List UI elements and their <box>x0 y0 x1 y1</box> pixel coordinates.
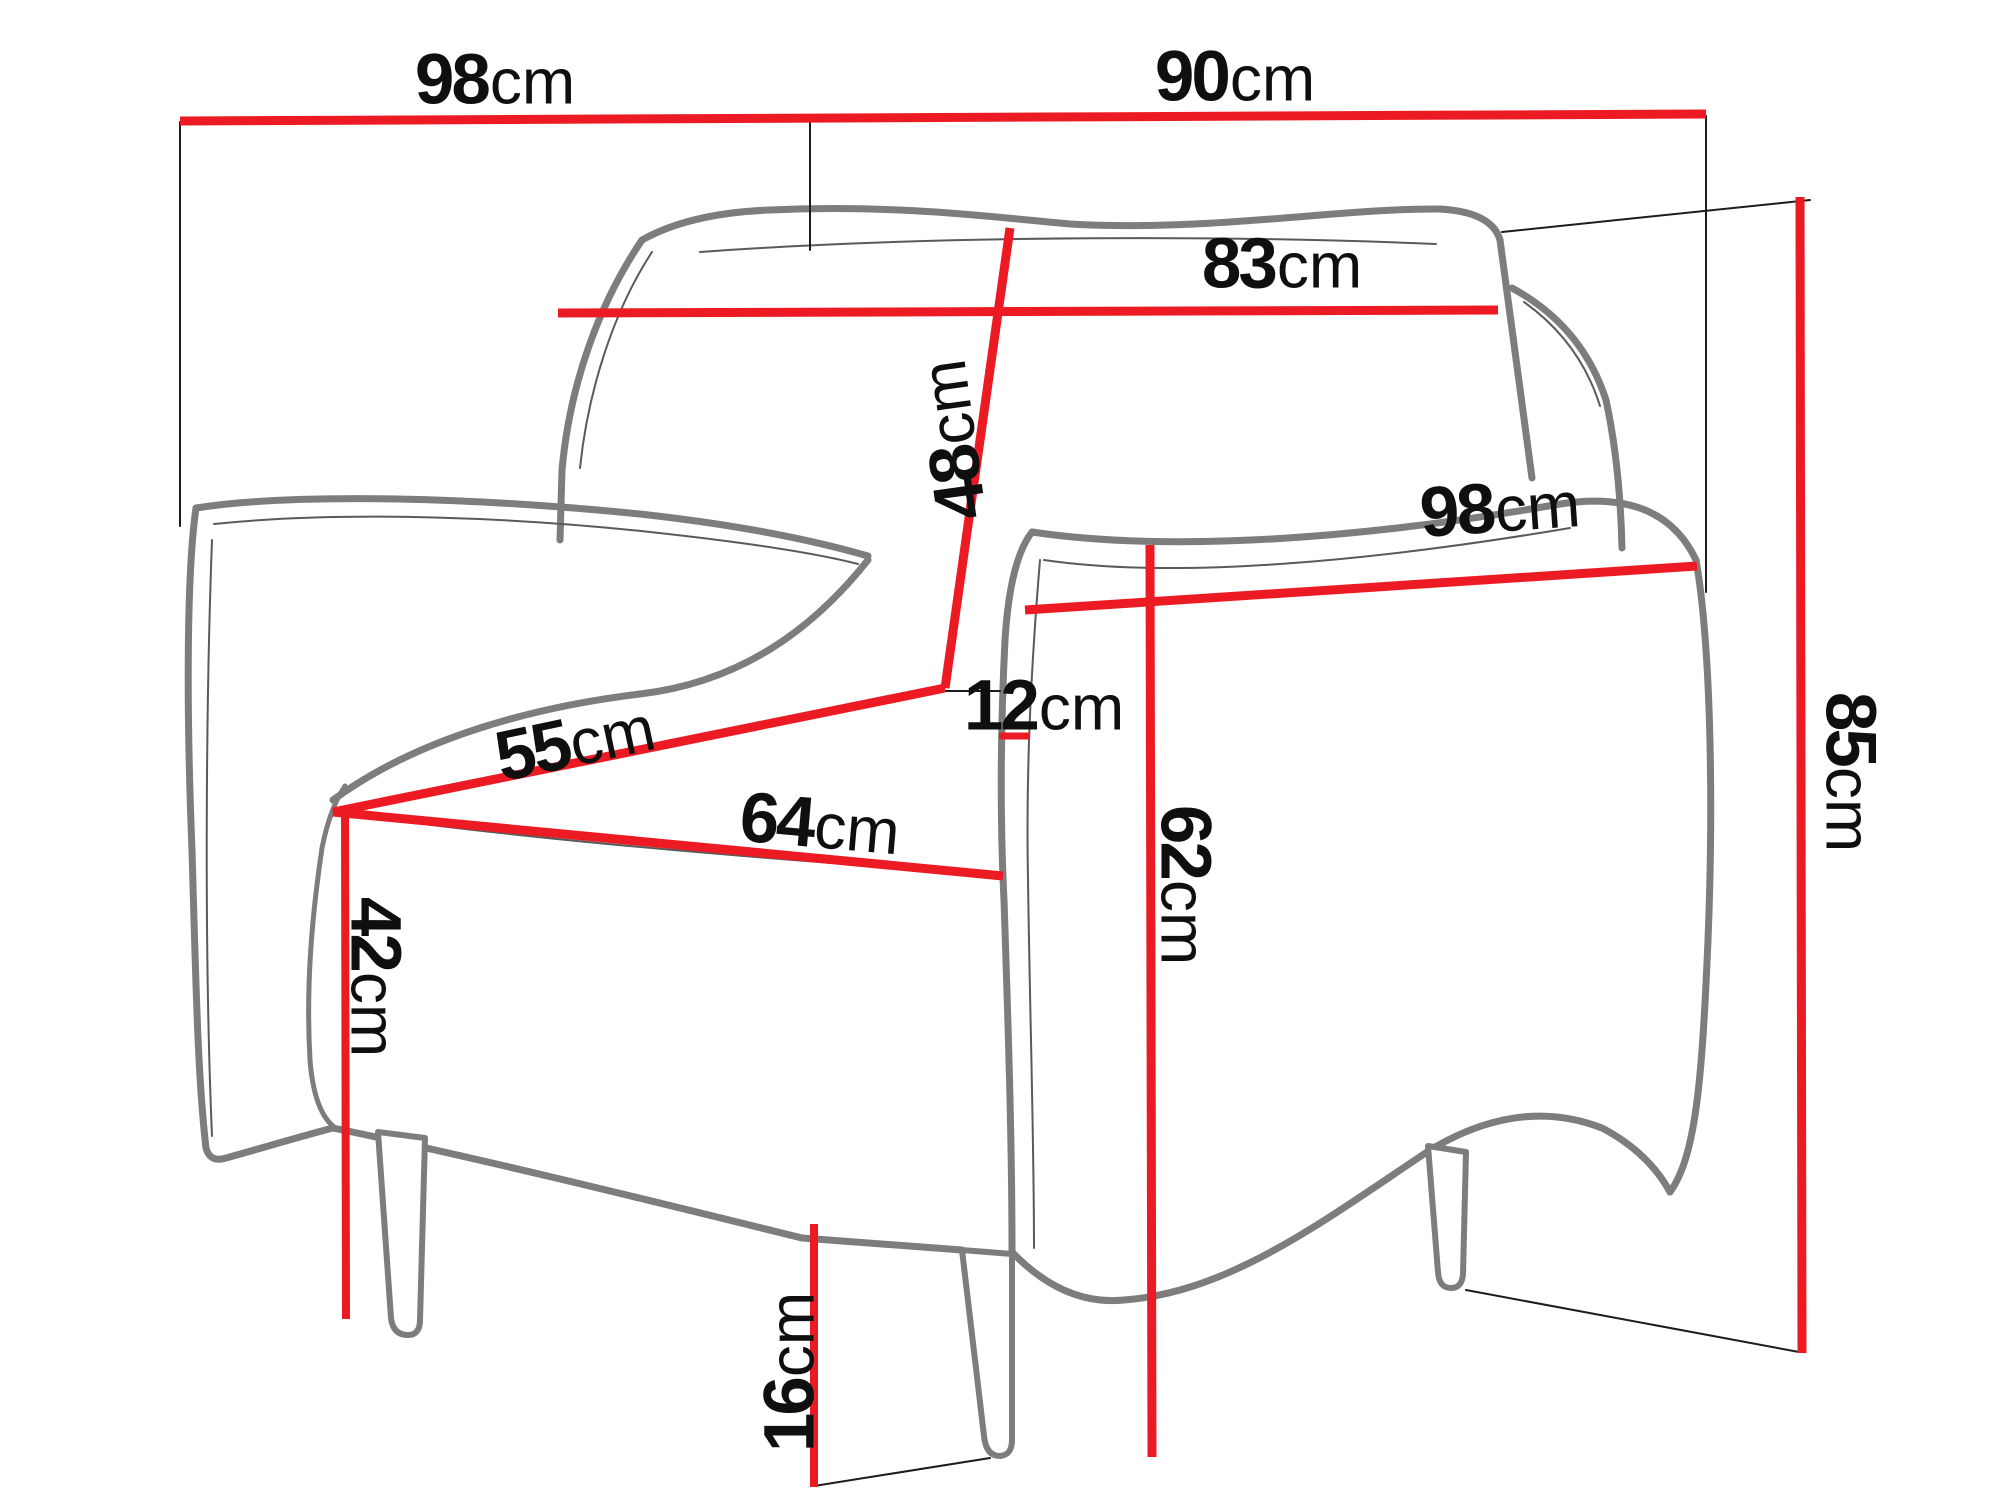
dimension-value: 98 <box>415 41 490 120</box>
dim-line-top-width <box>180 114 1706 121</box>
ext-top-right-horizontal <box>1502 200 1810 232</box>
dimension-unit: cm <box>756 1292 828 1377</box>
dimension-value: 42 <box>336 897 415 972</box>
dimension-label-seat-height: 42cm <box>340 897 411 1057</box>
dimension-label-front-width-top: 90cm <box>1155 42 1315 113</box>
dimension-label-seat-width: 64cm <box>737 782 903 867</box>
dim-line-armrest-height-62 <box>1150 545 1152 1457</box>
left-panel-top-seam <box>214 517 858 564</box>
front-right-leg <box>962 1250 1012 1456</box>
chair-seam-lines <box>207 238 1600 1248</box>
armchair-outline-drawing <box>0 0 2000 1500</box>
dimension-label-backrest-width: 83cm <box>1202 229 1362 300</box>
dimension-label-armrest-height: 62cm <box>1150 805 1221 965</box>
dim-line-backrest-width-83 <box>558 310 1498 313</box>
dimension-label-armrest-width: 12cm <box>964 671 1124 742</box>
right-armrest-top-edge <box>1032 501 1696 560</box>
dimension-unit: cm <box>907 355 990 450</box>
dimension-value: 98 <box>1417 469 1497 553</box>
dimension-unit: cm <box>1039 672 1124 744</box>
dimension-value: 90 <box>1155 38 1230 117</box>
dimension-value: 64 <box>737 778 819 863</box>
dim-line-seat-height-42 <box>345 810 346 1319</box>
dimension-value: 12 <box>964 667 1039 746</box>
dim-line-seat-width-64 <box>333 812 1003 876</box>
dimension-unit: cm <box>490 46 575 118</box>
dimension-value: 48 <box>914 440 1003 525</box>
left-panel-side-seam <box>207 540 212 1136</box>
dimension-label-side-depth: 98cm <box>1418 467 1583 549</box>
dimension-unit: cm <box>1813 767 1885 852</box>
dimension-label-total-height: 85cm <box>1815 692 1886 852</box>
dimension-unit: cm <box>1492 468 1582 546</box>
rear-right-leg <box>1428 1146 1466 1288</box>
dimension-unit: cm <box>812 789 903 868</box>
backrest-right-edge <box>1500 240 1532 478</box>
dimension-unit: cm <box>1230 43 1315 115</box>
base-bottom-edge-right <box>1012 1116 1670 1301</box>
dimension-label-back-width-top: 98cm <box>415 45 575 116</box>
armchair-dimension-diagram: 98cm 90cm 83cm 48cm 98cm 55cm 12cm 64cm … <box>0 0 2000 1500</box>
backrest-top-edge <box>642 209 1500 240</box>
right-panel-outer-edge <box>1670 560 1711 1192</box>
dimension-unit: cm <box>1277 230 1362 302</box>
dimension-value: 85 <box>1811 692 1890 767</box>
dimension-value: 16 <box>751 1377 830 1452</box>
ext-floor-right <box>1466 1290 1799 1352</box>
dimension-unit: cm <box>338 972 410 1057</box>
dimension-label-leg-height: 16cm <box>755 1292 826 1452</box>
dimension-value: 83 <box>1202 225 1277 304</box>
dim-line-side-depth-98 <box>1025 566 1697 610</box>
front-left-leg <box>378 1132 425 1335</box>
dim-line-total-height-85 <box>1800 197 1802 1353</box>
backrest-left-edge <box>560 240 642 540</box>
dimension-unit: cm <box>1148 880 1220 965</box>
armrest-front-seam <box>1028 560 1041 1248</box>
ext-floor-front <box>814 1458 990 1486</box>
dimension-value: 62 <box>1146 805 1225 880</box>
